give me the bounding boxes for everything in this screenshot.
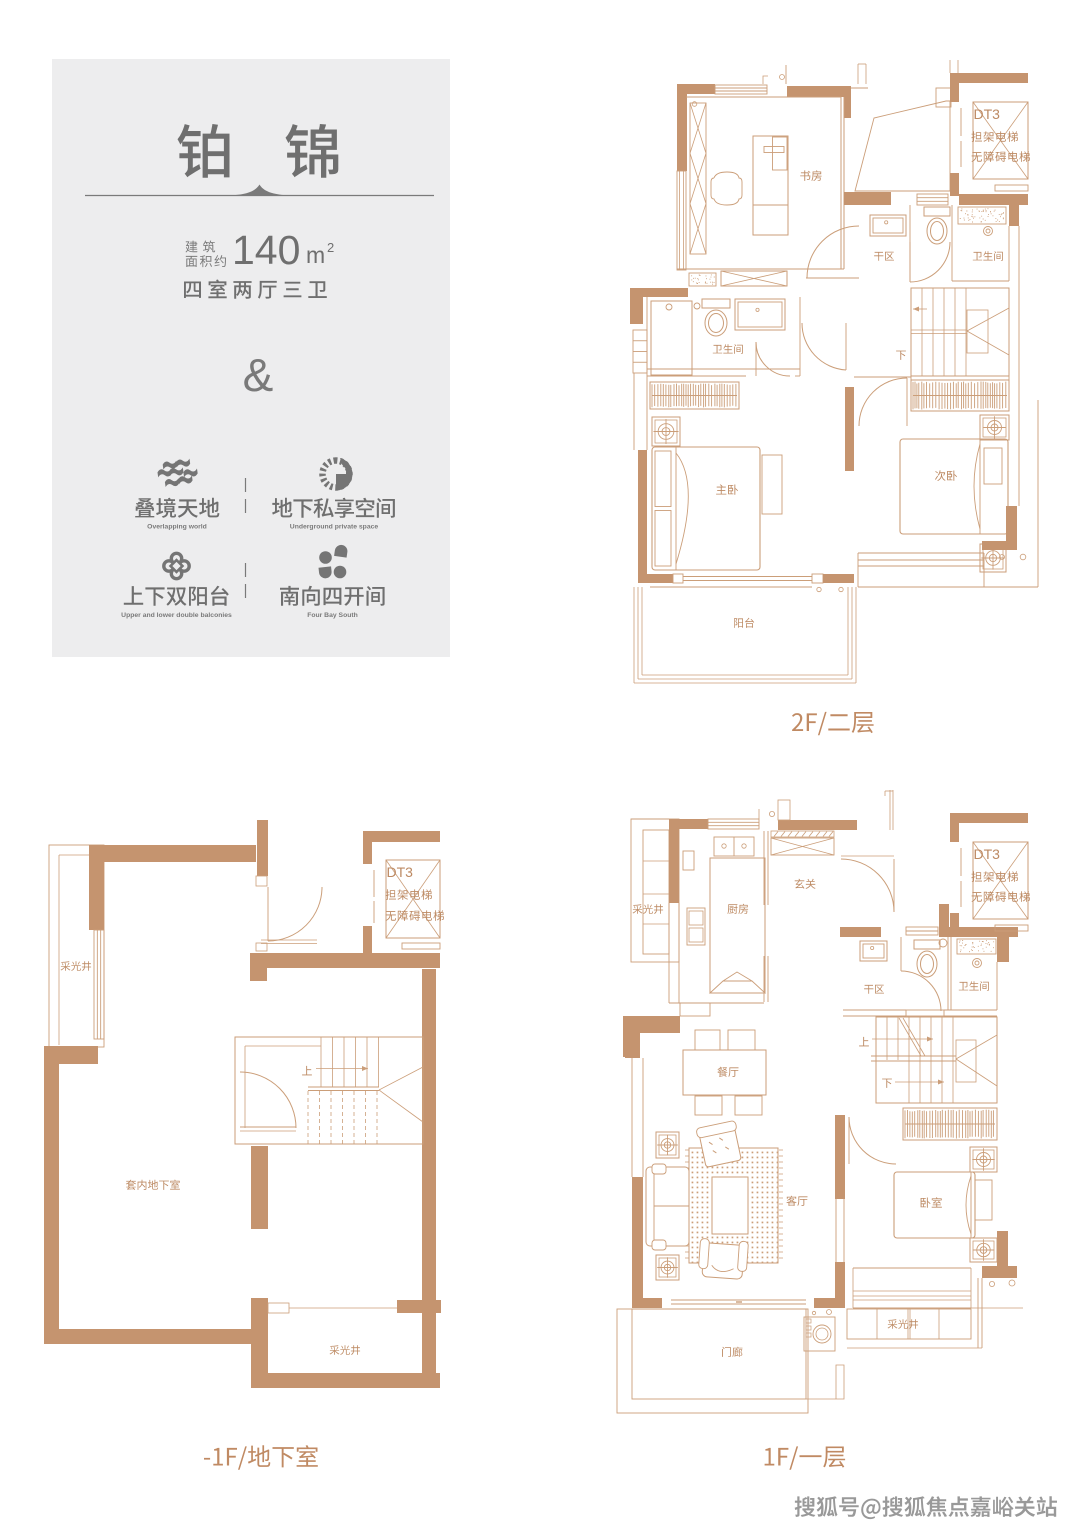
svg-text:Overlapping world: Overlapping world [147, 524, 207, 531]
svg-text:m: m [306, 242, 325, 268]
svg-text:&: & [243, 349, 274, 401]
svg-text:DT3: DT3 [974, 106, 1001, 122]
svg-text:DT3: DT3 [974, 846, 1001, 862]
svg-text:2: 2 [327, 240, 334, 255]
svg-text:140: 140 [232, 227, 300, 273]
svg-text:Four Bay South: Four Bay South [307, 612, 358, 619]
svg-text:Underground private space: Underground private space [290, 524, 379, 531]
svg-text:Upper and lower double balconi: Upper and lower double balconies [121, 612, 232, 619]
svg-text:DT3: DT3 [387, 864, 414, 880]
